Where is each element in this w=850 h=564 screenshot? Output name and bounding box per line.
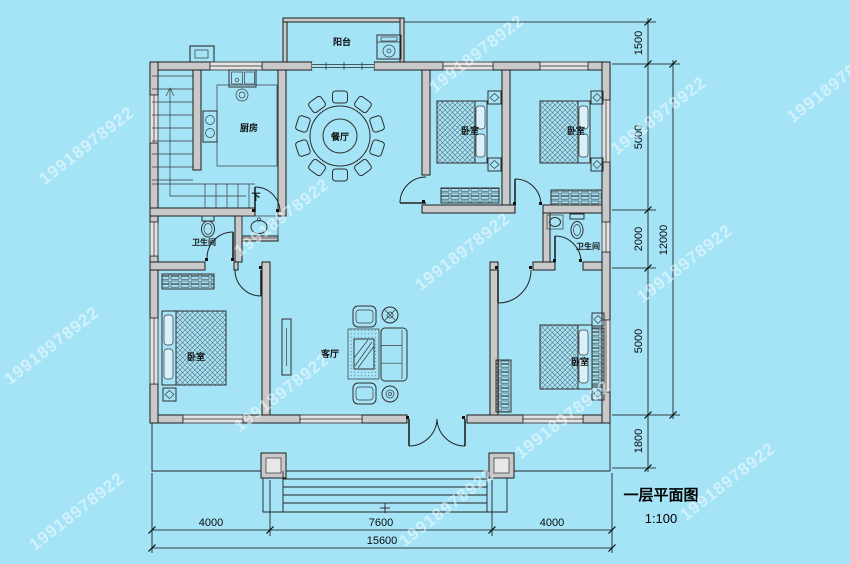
pillow — [164, 349, 173, 379]
dim-right-4: 5000 — [633, 329, 645, 353]
balcony-sliding-door — [312, 62, 374, 70]
dresser — [162, 274, 214, 289]
pillow — [164, 315, 173, 345]
room-label-bathroom: 卫生间 — [576, 241, 600, 251]
stairs-down-label: 下 — [251, 192, 260, 202]
porch-column — [261, 453, 286, 478]
dresser — [551, 190, 602, 205]
room-label-bedroom: 卧室 — [461, 125, 479, 136]
wardrobe — [592, 328, 604, 385]
bed — [176, 311, 226, 385]
dim-bottom-3: 4000 — [540, 517, 564, 529]
room-label-bathroom: 卫生间 — [192, 237, 216, 247]
room-label-kitchen: 厨房 — [240, 122, 258, 133]
floor-plan: 下 厨房 — [0, 0, 850, 564]
room-label-balcony: 阳台 — [333, 36, 351, 47]
dim-right-total: 12000 — [658, 225, 670, 256]
room-label-bedroom: 卧室 — [567, 125, 585, 136]
chimney-box — [190, 46, 214, 62]
pillow — [579, 134, 588, 157]
rug-and-coffee-table — [348, 329, 379, 379]
room-label-bedroom: 卧室 — [571, 356, 589, 367]
dim-right-5: 1800 — [633, 429, 645, 453]
dim-right-3: 2000 — [633, 227, 645, 251]
dresser — [496, 360, 511, 412]
plan-scale: 1:100 — [645, 511, 678, 526]
pillow — [476, 134, 485, 157]
room-label-dining: 餐厅 — [330, 131, 349, 142]
dim-bottom-1: 4000 — [199, 517, 223, 529]
room-label-bedroom: 卧室 — [187, 351, 205, 362]
dim-right-1: 1500 — [633, 31, 645, 55]
dim-bottom-2: 7600 — [369, 517, 393, 529]
dresser — [441, 188, 499, 203]
dim-bottom-total: 15600 — [367, 535, 398, 547]
pillow — [579, 330, 588, 355]
